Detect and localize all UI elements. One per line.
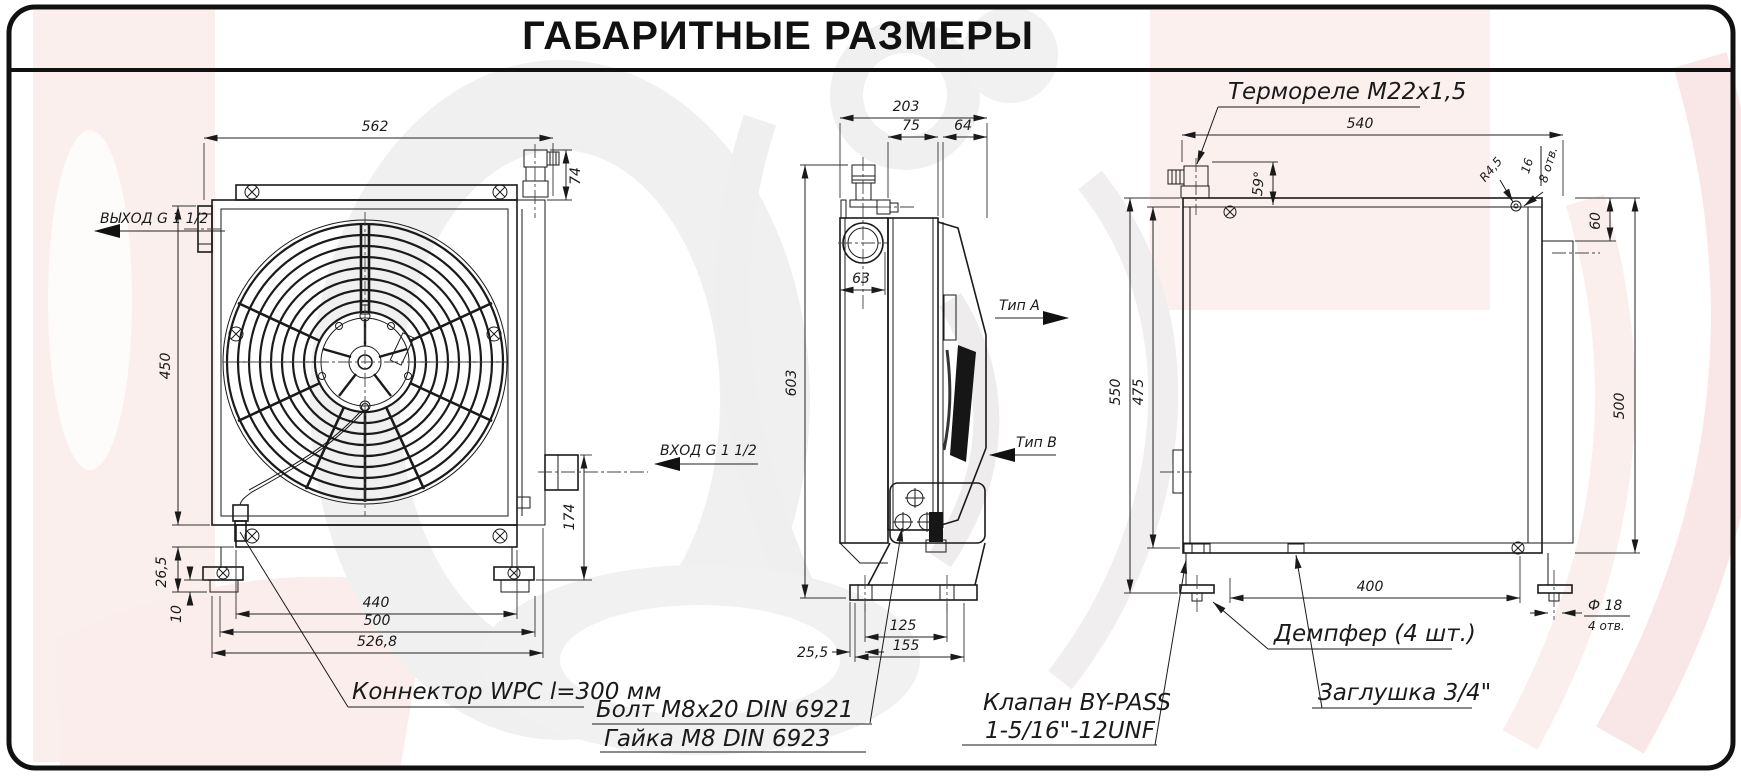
valve-callout-line1: Клапан BY-PASS — [983, 690, 1171, 716]
bolt-nut-callout: Болт M8x20 DIN 6921 Гайка M8 DIN 6923 — [592, 528, 902, 752]
front-top-flange — [236, 185, 517, 200]
dim-hole-dia: Ф 18 — [1588, 598, 1622, 614]
dim-26-5: 26,5 — [154, 556, 170, 587]
bypass-valve-callout: Клапан BY-PASS 1-5/16"-12UNF — [962, 560, 1186, 745]
dim-550: 550 — [1108, 379, 1124, 406]
back-left-tab — [1173, 450, 1183, 493]
drain-plug — [1288, 544, 1304, 553]
side-view: 203 75 64 63 603 125 155 — [592, 99, 1186, 752]
side-elbow-fitting — [877, 200, 917, 214]
back-dimensions: 540 59° R4,5 16 8 отв. 60 550 4 — [1108, 116, 1640, 633]
bolt-callout-text: Болт M8x20 DIN 6921 — [596, 697, 853, 723]
dim-440: 440 — [363, 595, 390, 611]
damper-callout: Демпфер (4 шт.) — [1213, 602, 1476, 649]
sheet-border — [9, 7, 1733, 768]
side-fan-profile — [926, 218, 986, 552]
page-title: ГАБАРИТНЫЕ РАЗМЕРЫ — [0, 0, 1556, 59]
dim-526-8: 526,8 — [357, 634, 397, 650]
dim-64: 64 — [954, 118, 972, 134]
dim-475: 475 — [1131, 379, 1147, 406]
dim-450: 450 — [158, 353, 174, 380]
inlet-label: ВХОД G 1 1/2 — [660, 443, 757, 459]
dim-63: 63 — [852, 271, 870, 287]
dim-8-holes: 8 отв. — [1536, 145, 1560, 184]
bypass-plug — [1184, 544, 1210, 553]
front-thermo-fitting — [523, 144, 559, 218]
dim-125: 125 — [890, 618, 917, 634]
inlet-port — [517, 455, 648, 508]
fan-grille — [223, 212, 507, 541]
dim-4-holes: 4 отв. — [1588, 619, 1625, 633]
dim-540: 540 — [1347, 116, 1374, 132]
damper-callout-text: Демпфер (4 шт.) — [1273, 621, 1476, 647]
dim-74: 74 — [568, 167, 584, 185]
type-a-label: Тип А — [999, 298, 1040, 314]
dim-174: 174 — [562, 504, 578, 531]
valve-callout-line2: 1-5/16"-12UNF — [985, 718, 1156, 744]
dim-75: 75 — [902, 118, 920, 134]
side-dimensions: 203 75 64 63 603 125 155 — [784, 99, 1068, 662]
connector-callout: Коннектор WPC l=300 мм — [240, 532, 661, 707]
dim-10: 10 — [169, 605, 185, 623]
dim-16: 16 — [1518, 156, 1536, 175]
drawing-sheet: 562 74 450 26,5 10 440 500 — [0, 0, 1741, 776]
type-b-label: Тип В — [1016, 435, 1057, 451]
front-feet — [203, 547, 534, 592]
outlet-label: ВЫХОД G 1 1/2 — [100, 211, 208, 227]
front-bottom-flange — [236, 525, 517, 547]
front-side-tank — [517, 200, 545, 525]
technical-drawing: 562 74 450 26,5 10 440 500 — [0, 0, 1741, 776]
thermo-callout: Термореле M22x1,5 — [1197, 79, 1466, 164]
nut-callout-text: Гайка M8 DIN 6923 — [604, 726, 831, 752]
back-frame — [1183, 198, 1542, 553]
dim-r4-5: R4,5 — [1477, 154, 1505, 184]
filler-fitting — [850, 157, 877, 310]
dim-203: 203 — [893, 99, 920, 115]
dim-603: 603 — [784, 370, 800, 397]
dim-562: 562 — [362, 119, 389, 135]
front-view: 562 74 450 26,5 10 440 500 — [95, 119, 758, 707]
dim-500-back: 500 — [1612, 393, 1628, 420]
corner-screw-icon — [1224, 201, 1524, 554]
back-side-panel — [1542, 241, 1573, 543]
dim-155: 155 — [893, 638, 920, 654]
wire-connector — [233, 505, 248, 521]
plug-callout-text: Заглушка 3/4" — [1318, 680, 1491, 706]
back-view: 540 59° R4,5 16 8 отв. 60 550 4 — [1108, 79, 1640, 708]
dim-25-5: 25,5 — [797, 645, 828, 661]
dim-400: 400 — [1357, 579, 1384, 595]
back-thermo-fitting — [1168, 158, 1209, 215]
dim-59: 59° — [1250, 171, 1268, 197]
side-tank — [840, 218, 888, 543]
thermo-callout-text: Термореле M22x1,5 — [1228, 79, 1466, 105]
dim-500: 500 — [364, 613, 391, 629]
dim-60: 60 — [1588, 212, 1604, 230]
